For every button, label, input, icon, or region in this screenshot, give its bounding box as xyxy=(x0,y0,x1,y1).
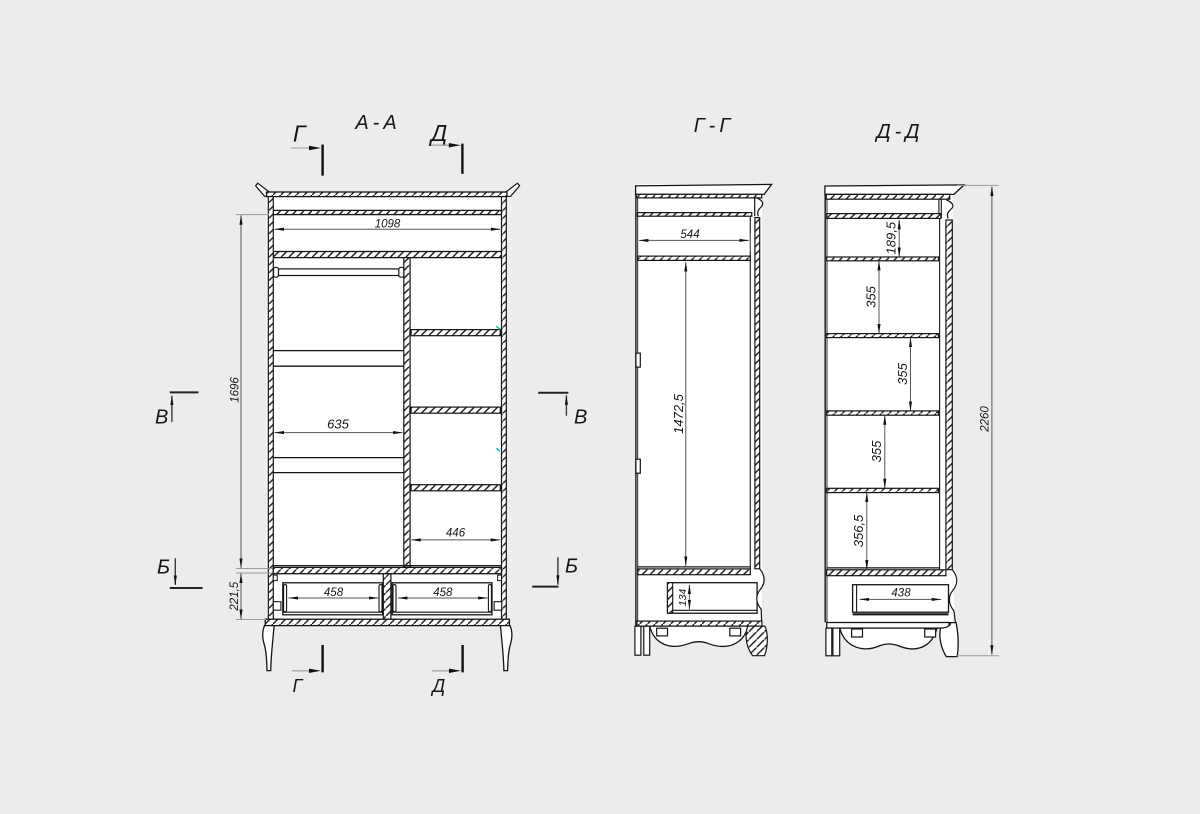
svg-text:438: 438 xyxy=(891,588,911,600)
svg-text:635: 635 xyxy=(327,417,349,432)
svg-text:Д - Д: Д - Д xyxy=(875,121,920,143)
svg-text:458: 458 xyxy=(324,587,344,599)
svg-text:355: 355 xyxy=(869,440,884,462)
svg-text:2260: 2260 xyxy=(979,406,991,433)
svg-text:446: 446 xyxy=(446,527,466,539)
svg-text:355: 355 xyxy=(863,285,878,307)
svg-text:В: В xyxy=(574,407,587,429)
svg-text:В: В xyxy=(155,407,168,429)
svg-text:189,5: 189,5 xyxy=(884,221,899,254)
svg-text:А - А: А - А xyxy=(354,112,396,134)
svg-text:356,5: 356,5 xyxy=(851,514,866,547)
svg-text:Б: Б xyxy=(157,556,170,578)
svg-text:134: 134 xyxy=(677,589,689,607)
svg-text:1472,5: 1472,5 xyxy=(671,393,686,434)
svg-text:Г - Г: Г - Г xyxy=(694,115,733,137)
svg-text:544: 544 xyxy=(680,229,699,241)
svg-text:Д: Д xyxy=(428,120,447,146)
svg-text:1098: 1098 xyxy=(375,218,401,230)
svg-text:355: 355 xyxy=(895,362,910,384)
svg-text:Г: Г xyxy=(293,121,307,147)
svg-text:Г: Г xyxy=(293,676,304,696)
svg-text:Б: Б xyxy=(565,556,578,578)
svg-text:458: 458 xyxy=(433,587,453,599)
svg-text:Д: Д xyxy=(431,676,446,696)
svg-text:221,5: 221,5 xyxy=(229,581,241,611)
svg-text:1696: 1696 xyxy=(230,377,242,403)
